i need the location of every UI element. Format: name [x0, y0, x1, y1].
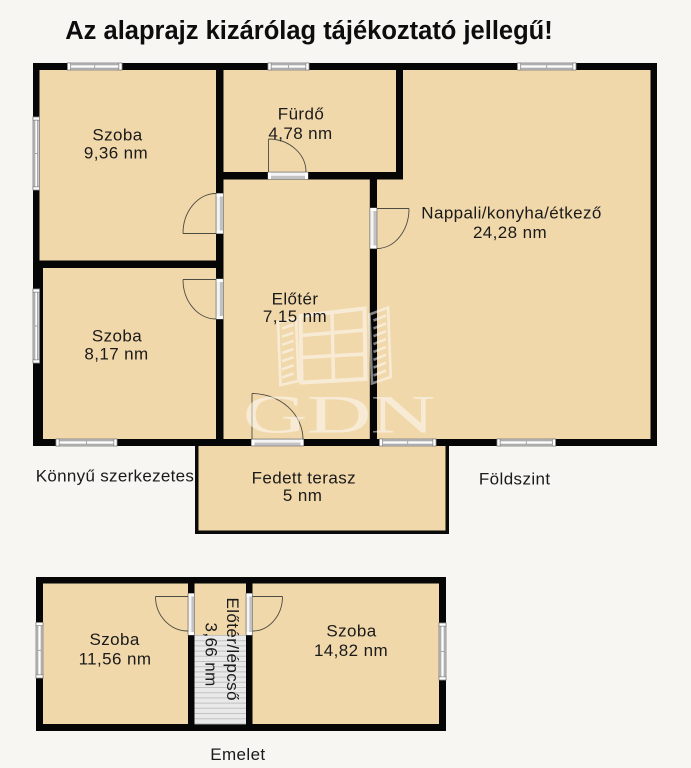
svg-text:8,17 nm: 8,17 nm [84, 345, 148, 364]
svg-text:Földszint: Földszint [479, 470, 551, 489]
svg-text:GDN: GDN [243, 385, 435, 445]
svg-text:Szoba: Szoba [326, 622, 376, 641]
svg-text:11,56 nm: 11,56 nm [79, 649, 152, 668]
svg-text:Szoba: Szoba [92, 327, 142, 346]
svg-text:5 nm: 5 nm [283, 486, 322, 505]
svg-text:Szoba: Szoba [92, 126, 142, 145]
svg-text:9,36 nm: 9,36 nm [84, 144, 148, 163]
svg-text:Nappali/konyha/étkező: Nappali/konyha/étkező [421, 204, 601, 223]
svg-text:Emelet: Emelet [210, 745, 265, 764]
svg-text:Előtér/lépcső: Előtér/lépcső [223, 597, 242, 700]
svg-text:3,66 nm: 3,66 nm [201, 622, 220, 686]
svg-text:Szoba: Szoba [89, 630, 139, 649]
svg-text:24,28 nm: 24,28 nm [473, 223, 547, 242]
svg-text:Előtér: Előtér [272, 289, 319, 308]
svg-text:14,82 nm: 14,82 nm [314, 641, 388, 660]
svg-text:Az alaprajz kizárólag tájékozt: Az alaprajz kizárólag tájékoztató jelleg… [65, 17, 552, 45]
svg-text:Könnyű szerkezetes: Könnyű szerkezetes [36, 467, 194, 486]
svg-text:Fürdő: Fürdő [278, 105, 324, 124]
svg-text:7,15 nm: 7,15 nm [263, 307, 327, 326]
svg-text:Fedett terasz: Fedett terasz [252, 468, 356, 487]
svg-text:4,78 nm: 4,78 nm [268, 124, 332, 143]
